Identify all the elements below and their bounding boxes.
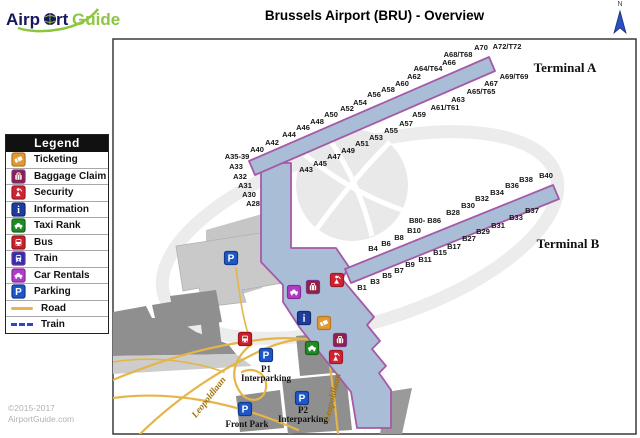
gate-label-A63: A63 (451, 95, 465, 104)
info-icon: i (11, 202, 26, 217)
legend-item-road: Road (6, 300, 108, 317)
legend-item-security: Security (6, 184, 108, 201)
gate-label-B37: B37 (525, 206, 539, 215)
gate-label-A57: A57 (399, 119, 413, 128)
parking-icon: P (225, 252, 238, 265)
security-icon (11, 185, 26, 200)
gate-label-A62: A62 (407, 72, 421, 81)
copyright-site: AirportGuide.com (8, 414, 74, 425)
gate-label-B1: B1 (357, 283, 367, 292)
gate-label-B17: B17 (447, 242, 461, 251)
gate-label-B32: B32 (475, 194, 489, 203)
security-icon (330, 351, 343, 364)
legend-panel: Legend TicketingBaggage ClaimSecurityiIn… (5, 134, 109, 334)
gate-label-B29: B29 (476, 227, 490, 236)
parking-icon: P (11, 284, 26, 299)
gate-label-B40: B40 (539, 171, 553, 180)
baggage-icon (11, 169, 26, 184)
gate-label-A35-39: A35-39 (225, 152, 250, 161)
gate-label-A43: A43 (299, 165, 313, 174)
gate-label-B3: B3 (370, 277, 380, 286)
gate-label-A72-T72: A72/T72 (493, 42, 522, 51)
parking-icon: P (260, 349, 273, 362)
gate-label-A44: A44 (282, 130, 297, 139)
legend-item-label: Bus (34, 237, 53, 248)
baggage-icon (307, 281, 320, 294)
page: Airp rt Guide Brussels Airport (BRU) - O… (0, 0, 640, 438)
gate-label-A70: A70 (474, 43, 488, 52)
gate-label-B31: B31 (491, 221, 505, 230)
info-icon: i (298, 312, 311, 325)
gate-label-A54: A54 (353, 98, 368, 107)
gate-label-A40: A40 (250, 145, 264, 154)
legend-item-label: Car Rentals (34, 270, 90, 281)
gate-label-A53: A53 (369, 133, 383, 142)
security-icon (331, 274, 344, 287)
legend-item-label: Train (34, 253, 58, 264)
train-icon (11, 251, 26, 266)
baggage-icon (334, 334, 347, 347)
gate-label-A51: A51 (355, 139, 369, 148)
rail-line-swatch (11, 323, 33, 326)
gate-label-B8: B8 (394, 233, 404, 242)
taxi-icon (11, 218, 26, 233)
copyright-years: ©2015-2017 (8, 403, 74, 414)
copyright: ©2015-2017 AirportGuide.com (8, 403, 74, 425)
svg-text:P: P (299, 394, 306, 405)
legend-item-parking: PParking (6, 283, 108, 300)
gate-label-A58: A58 (381, 85, 395, 94)
gate-label-A67: A67 (484, 79, 498, 88)
legend-item-train: Train (6, 316, 108, 333)
gate-label-B38: B38 (519, 175, 533, 184)
bus-icon (239, 333, 252, 346)
svg-text:P: P (15, 287, 22, 298)
gate-label-B28: B28 (446, 208, 460, 217)
ticketing-icon (318, 317, 331, 330)
gate-label-B9: B9 (405, 260, 415, 269)
gate-label-B11: B11 (418, 255, 431, 264)
gate-label-A50: A50 (324, 110, 338, 119)
legend-item-label: Taxi Rank (34, 220, 81, 231)
svg-text:i: i (17, 205, 20, 216)
gate-label-B7: B7 (394, 266, 404, 275)
legend-title: Legend (6, 135, 108, 152)
legend-item-information: iInformation (6, 201, 108, 218)
parking-icon: P (296, 392, 309, 405)
gate-label-B34: B34 (490, 188, 505, 197)
gate-label-B80-B86: B80- B86 (409, 216, 441, 225)
legend-item-car-rentals: Car Rentals (6, 267, 108, 284)
p2-interparking-label: Interparking (278, 414, 329, 424)
legend-item-label: Road (41, 303, 66, 314)
svg-text:P: P (242, 405, 249, 416)
gate-label-B27: B27 (462, 234, 476, 243)
svg-text:P: P (263, 351, 270, 362)
taxi-icon (306, 342, 319, 355)
gate-label-A31: A31 (238, 181, 252, 190)
gate-label-A64-T64: A64/T64 (414, 64, 444, 73)
svg-text:P: P (228, 254, 235, 265)
gate-label-A49: A49 (341, 146, 355, 155)
gate-label-A48: A48 (310, 117, 324, 126)
legend-item-ticketing: Ticketing (6, 152, 108, 168)
gate-label-A28: A28 (246, 199, 260, 208)
svg-text:i: i (303, 314, 306, 325)
gate-label-A30: A30 (242, 190, 256, 199)
gate-label-A55: A55 (384, 126, 398, 135)
gate-label-B15: B15 (433, 248, 447, 257)
gate-label-A66: A66 (442, 58, 456, 67)
gate-label-A45: A45 (313, 159, 327, 168)
legend-item-baggage-claim: Baggage Claim (6, 168, 108, 185)
front-park-label: Front Park (225, 419, 268, 429)
gate-label-A68-T68: A68/T68 (444, 50, 473, 59)
terminal-a-label: Terminal A (534, 60, 597, 75)
bus-icon (11, 235, 26, 250)
gate-label-B30: B30 (461, 201, 475, 210)
gate-label-A65-T65: A65/T65 (467, 87, 496, 96)
gate-label-B6: B6 (381, 239, 391, 248)
gate-label-B4: B4 (368, 244, 378, 253)
legend-item-label: Train (41, 319, 65, 330)
gate-label-A59: A59 (412, 110, 426, 119)
gate-label-B5: B5 (382, 271, 392, 280)
gate-label-A46: A46 (296, 123, 310, 132)
legend-item-label: Parking (34, 286, 71, 297)
gate-label-A52: A52 (340, 104, 354, 113)
legend-item-train: Train (6, 250, 108, 267)
legend-item-bus: Bus (6, 234, 108, 251)
terminal-b-label: Terminal B (537, 236, 600, 251)
gate-label-A42: A42 (265, 138, 279, 147)
gate-label-B36: B36 (505, 181, 519, 190)
gate-label-A56: A56 (367, 90, 381, 99)
p1-interparking-label: Interparking (241, 373, 292, 383)
gate-label-B10: B10 (407, 226, 421, 235)
legend-item-label: Information (34, 204, 89, 215)
car-rentals-icon (11, 268, 26, 283)
legend-item-label: Ticketing (34, 154, 78, 165)
gate-label-B33: B33 (509, 213, 523, 222)
legend-item-taxi-rank: Taxi Rank (6, 217, 108, 234)
gate-label-A47: A47 (327, 152, 341, 161)
gate-label-A61-T61: A61/T61 (431, 103, 460, 112)
parking-icon: P (239, 403, 252, 416)
gate-label-A69-T69: A69/T69 (500, 72, 529, 81)
legend-item-label: Baggage Claim (34, 171, 106, 182)
legend-item-label: Security (34, 187, 73, 198)
ticketing-icon (11, 152, 26, 167)
gate-label-A32: A32 (233, 172, 247, 181)
car-rentals-icon (288, 286, 301, 299)
gate-label-A33: A33 (229, 162, 243, 171)
road-line-swatch (11, 307, 33, 310)
